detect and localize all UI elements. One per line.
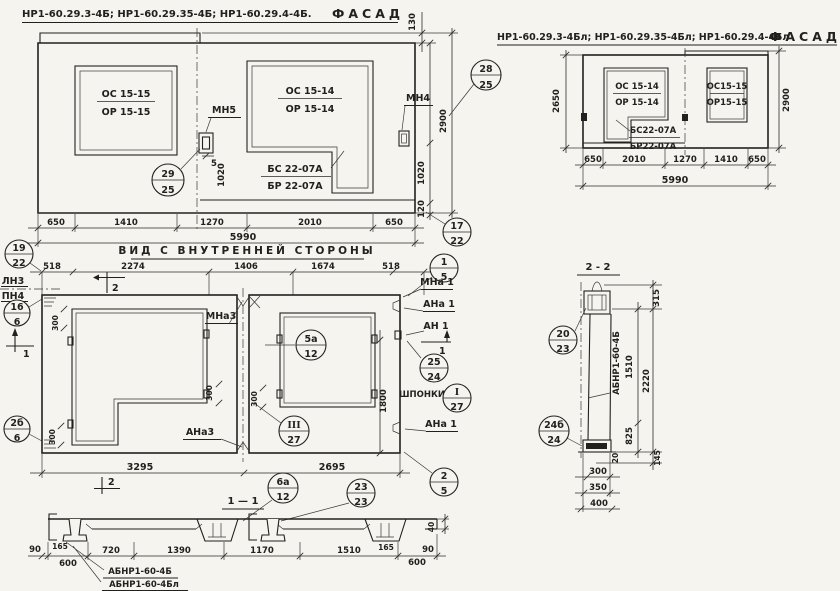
svg-text:2900: 2900	[782, 88, 792, 112]
interior-top-dims: 518 2274 1406 1674 518	[30, 262, 438, 295]
facade-left-drawing: НР1-60.29.3-4Б; НР1-60.29.35-4Б; НР1-60.…	[22, 6, 501, 247]
svg-text:16: 16	[10, 302, 24, 313]
svg-text:12: 12	[304, 349, 317, 360]
svg-text:24: 24	[427, 372, 441, 383]
svg-text:1020: 1020	[417, 161, 427, 185]
svg-text:23: 23	[354, 482, 367, 493]
rib-left	[63, 519, 87, 541]
fr-window1-mark-top: ОС 15-14	[615, 82, 659, 92]
svg-text:1410: 1410	[714, 155, 738, 165]
section-panel-mark: АБНР1-60-4Б	[612, 331, 622, 395]
svg-text:2650: 2650	[552, 89, 562, 113]
svg-text:23: 23	[354, 497, 367, 508]
callout-III-27: III 27	[254, 403, 309, 446]
svg-text:600: 600	[59, 559, 77, 569]
blueprint-sheet: НР1-60.29.3-4Б; НР1-60.29.35-4Б; НР1-60.…	[0, 0, 840, 591]
block-mark-bottom: БР 22-07А	[267, 181, 323, 192]
interior-bottom-dims: 3295 2695	[30, 454, 410, 478]
svg-text:22: 22	[12, 258, 25, 269]
anchor-mn5-label: МН5	[212, 105, 236, 116]
svg-text:20: 20	[556, 329, 570, 340]
svg-text:20: 20	[611, 453, 620, 463]
callout-5a-12: 5а 12	[265, 330, 326, 360]
dim-300-b: 300	[205, 385, 214, 401]
rib-mid-left	[197, 519, 238, 541]
svg-text:90: 90	[422, 545, 434, 555]
svg-text:1390: 1390	[167, 546, 191, 556]
svg-text:25: 25	[479, 80, 492, 91]
window2-mark-top: ОС 15-14	[286, 86, 335, 97]
svg-text:1: 1	[23, 349, 30, 360]
svg-text:1510: 1510	[625, 355, 635, 379]
svg-text:650: 650	[47, 218, 65, 228]
svg-text:2б: 2б	[10, 418, 24, 429]
svg-text:24б: 24б	[544, 420, 564, 431]
svg-text:29: 29	[161, 169, 174, 180]
svg-text:2900: 2900	[439, 109, 449, 133]
svg-text:III: III	[287, 420, 301, 431]
svg-text:24: 24	[547, 435, 561, 446]
svg-text:1: 1	[441, 257, 448, 268]
dim-300-a: 300	[51, 315, 60, 331]
fr-window2-mark-bottom: ОР15-15	[707, 98, 748, 108]
dim-40: 40	[427, 522, 436, 532]
svg-text:23: 23	[556, 344, 569, 355]
dim-300-c: 300	[250, 391, 259, 407]
callout-19-22: 19 22	[5, 240, 41, 271]
callout-I-27: I 27	[443, 384, 471, 413]
facade-left-title: НР1-60.29.3-4Б; НР1-60.29.35-4Б; НР1-60.…	[22, 9, 312, 20]
section-2-2-title: 2 - 2	[585, 262, 610, 273]
svg-text:5: 5	[441, 486, 448, 497]
row-label-ln3: ЛН3	[2, 276, 24, 287]
svg-text:1410: 1410	[114, 218, 138, 228]
svg-text:2: 2	[112, 283, 119, 294]
svg-text:2010: 2010	[298, 218, 322, 228]
section-1-1-title: 1 — 1	[228, 496, 259, 507]
svg-text:120: 120	[417, 200, 427, 218]
panel-mark-b: АБНР1-60-4Бл	[109, 580, 179, 590]
label-shponki: ШПОНКИ	[399, 390, 445, 400]
callout-29-25: 29 25	[152, 149, 200, 196]
svg-text:518: 518	[382, 262, 400, 272]
window1-mark-top: ОС 15-15	[102, 89, 151, 100]
svg-text:600: 600	[408, 558, 426, 568]
svg-text:2: 2	[441, 471, 448, 482]
panel-mark-a: АБНР1-60-4Б	[108, 567, 172, 577]
callout-17-22: 17 22	[426, 212, 471, 247]
svg-text:1270: 1270	[673, 155, 697, 165]
facade-right-title: НР1-60.29.3-4Бл; НР1-60.29.35-4Бл; НР1-6…	[497, 32, 789, 43]
svg-text:518: 518	[43, 262, 61, 272]
fr-block-mark-top: БС22-07А	[630, 126, 677, 136]
svg-text:2: 2	[108, 477, 115, 488]
svg-text:6: 6	[14, 433, 21, 444]
dim-total-5990: 5990	[230, 232, 257, 243]
interior-view-drawing: ВИД С ВНУТРЕННЕЙ СТОРОНЫ 518 2274 1406 1…	[0, 240, 471, 497]
svg-text:165: 165	[378, 543, 394, 552]
svg-text:2010: 2010	[622, 155, 646, 165]
svg-text:720: 720	[102, 546, 120, 556]
window1-mark-bottom: ОР 15-15	[102, 107, 151, 118]
svg-text:825: 825	[625, 427, 635, 445]
svg-text:I: I	[455, 387, 460, 398]
svg-text:12: 12	[276, 492, 289, 503]
svg-text:1406: 1406	[234, 262, 258, 272]
svg-text:6: 6	[14, 317, 21, 328]
dim-300-d: 300	[48, 429, 57, 445]
svg-text:165: 165	[52, 542, 68, 551]
facade-right-drawing: НР1-60.29.3-4Бл; НР1-60.29.35-4Бл; НР1-6…	[497, 29, 840, 190]
joint-anchor-icon	[199, 133, 213, 153]
edge-anchor-icon	[399, 131, 409, 146]
dim-1800: 1800	[379, 389, 389, 413]
rib-right	[365, 519, 406, 541]
dim-1020-left: 1020	[217, 163, 227, 187]
facade-left-bottom-dims: 650 1410 1270 2010 650 5990	[28, 214, 424, 247]
section-marker-1-left: 1	[6, 328, 34, 360]
callout-16-6: 16 6	[4, 299, 42, 328]
section-marker-2-bottom: 2	[94, 477, 120, 494]
section-marker-1-right: 1	[421, 330, 451, 357]
svg-text:27: 27	[287, 435, 300, 446]
rib-mid-right	[261, 519, 285, 541]
svg-text:130: 130	[408, 13, 418, 31]
svg-text:17: 17	[450, 221, 463, 232]
section-2-2-dims: 1510 825 315 2220 145 20 300 350 400	[575, 280, 662, 512]
facade-right-dims: 2650 2900 650 2010 1270 1410 650 5990	[552, 46, 792, 190]
facade-right-fasad: ФАСАД	[769, 29, 840, 44]
svg-text:22: 22	[450, 236, 463, 247]
svg-text:1270: 1270	[200, 218, 224, 228]
svg-text:1674: 1674	[311, 262, 335, 272]
facade-left-fasad: ФАСАД	[332, 6, 404, 21]
label-ana3: АНа3	[186, 427, 214, 438]
svg-text:1510: 1510	[337, 546, 361, 556]
anchor-mn4-label: МН4	[406, 93, 430, 104]
svg-text:300: 300	[589, 467, 607, 477]
svg-text:27: 27	[450, 402, 463, 413]
svg-text:6а: 6а	[276, 477, 289, 488]
section-marker-2-top: 2	[93, 272, 125, 294]
window2-mark-bottom: ОР 15-14	[286, 104, 335, 115]
anchor-mark-mid	[682, 114, 688, 121]
callout-2b-6: 2б 6	[4, 416, 42, 444]
svg-text:2220: 2220	[642, 369, 652, 393]
callout-24b-24: 24б 24	[539, 416, 582, 446]
callout-20-23: 20 23	[549, 308, 586, 355]
svg-text:2695: 2695	[319, 462, 345, 473]
svg-text:650: 650	[385, 218, 403, 228]
label-mna3: МНа3	[206, 311, 236, 322]
block-mark-top: БС 22-07А	[267, 164, 323, 175]
svg-text:2274: 2274	[121, 262, 145, 272]
svg-text:5а: 5а	[304, 334, 317, 345]
interior-window-right	[280, 313, 375, 407]
svg-text:650: 650	[748, 155, 766, 165]
svg-text:19: 19	[12, 243, 25, 254]
svg-text:25: 25	[427, 357, 440, 368]
label-an1: АН 1	[423, 321, 448, 332]
interior-panel-right	[249, 295, 400, 453]
svg-text:3295: 3295	[127, 462, 153, 473]
label-ana1-bottom: АНа 1	[425, 419, 457, 430]
fr-window1-mark-bottom: ОР 15-14	[615, 98, 659, 108]
svg-text:650: 650	[584, 155, 602, 165]
section-2-2-drawing: 2 - 2 АБНР1-60-4Б 1510 825 315 2220 145 …	[539, 262, 662, 512]
interior-window-left	[72, 309, 207, 445]
svg-text:25: 25	[161, 185, 174, 196]
fr-block-mark-bottom: БР22-07А	[630, 142, 677, 152]
facade-right-window2	[707, 68, 747, 122]
section-1-1-dims: 90 165 600 720 1390 1170 1510 165 600 90	[28, 534, 446, 569]
anchor-mark-left	[581, 113, 587, 121]
svg-text:315: 315	[652, 289, 662, 307]
svg-text:1170: 1170	[250, 546, 274, 556]
label-mna1: МНа 1	[420, 277, 454, 288]
fr-window2-mark-top: ОС15-15	[707, 82, 748, 92]
svg-text:400: 400	[590, 499, 608, 509]
svg-text:350: 350	[589, 483, 607, 493]
interior-title: ВИД С ВНУТРЕННЕЙ СТОРОНЫ	[118, 244, 375, 257]
svg-text:90: 90	[29, 545, 41, 555]
callout-2-5: 2 5	[404, 452, 458, 497]
label-ana1-top: АНа 1	[423, 299, 455, 310]
callout-28-25: 28 25	[449, 60, 501, 116]
section-1-1-drawing: 1 — 1 6а 12 23 23 40	[28, 473, 449, 591]
fr-dim-total: 5990	[662, 175, 689, 186]
svg-text:28: 28	[479, 64, 493, 75]
svg-text:145: 145	[653, 450, 662, 466]
